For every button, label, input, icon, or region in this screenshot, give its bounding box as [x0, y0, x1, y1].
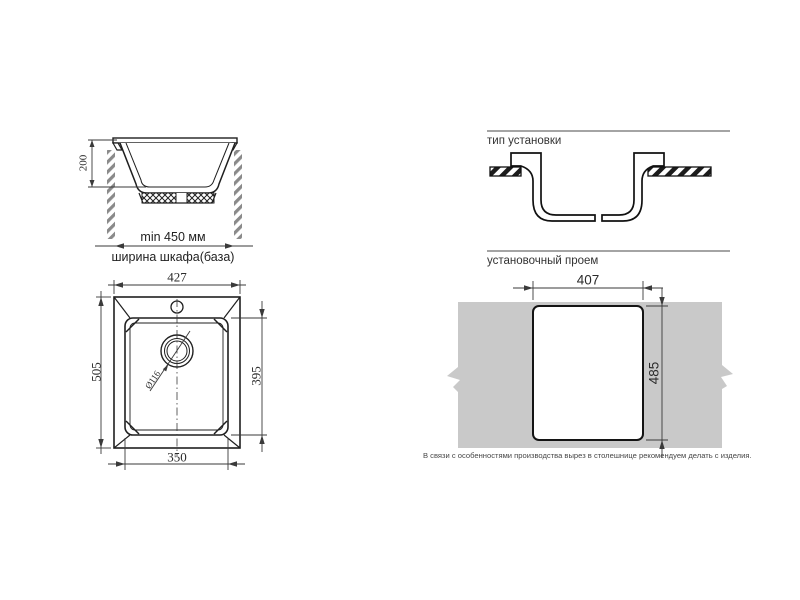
sink-profile-left [511, 153, 595, 221]
production-note: В связи с особенностями производства выр… [423, 452, 752, 460]
cutout-panel [447, 302, 733, 448]
sink-cross-section [113, 138, 237, 203]
installation-profile [490, 153, 711, 221]
sink-profile-right [602, 153, 664, 221]
support-pad-right [187, 193, 214, 203]
cabinet-width-label: ширина шкафа(база) [112, 251, 235, 264]
dim-lines-min450 [95, 243, 253, 249]
dim-200: 200 [79, 155, 90, 172]
dim-407: 407 [577, 273, 600, 287]
section-title-installation-type: тип установки [487, 136, 561, 148]
dim-350: 350 [167, 451, 187, 464]
countertop-bar-left [490, 167, 521, 176]
drawing-layer [0, 0, 800, 600]
support-pad-left [142, 193, 176, 203]
dim-505: 505 [90, 362, 103, 382]
cabinet-wall-left [107, 150, 115, 239]
technical-drawing-page: 200 min 450 мм ширина шкафа(база) тип ус… [0, 0, 800, 600]
cutout-opening [533, 306, 643, 440]
cabinet-wall-right [234, 150, 242, 239]
dim-427: 427 [167, 271, 187, 284]
section-title-cutout: установочный проем [487, 256, 598, 268]
sink-top-view [114, 297, 240, 456]
dim-485: 485 [647, 362, 661, 385]
dim-395: 395 [250, 366, 263, 386]
countertop-bar-right [648, 167, 711, 176]
min-width-label: min 450 мм [140, 231, 205, 244]
